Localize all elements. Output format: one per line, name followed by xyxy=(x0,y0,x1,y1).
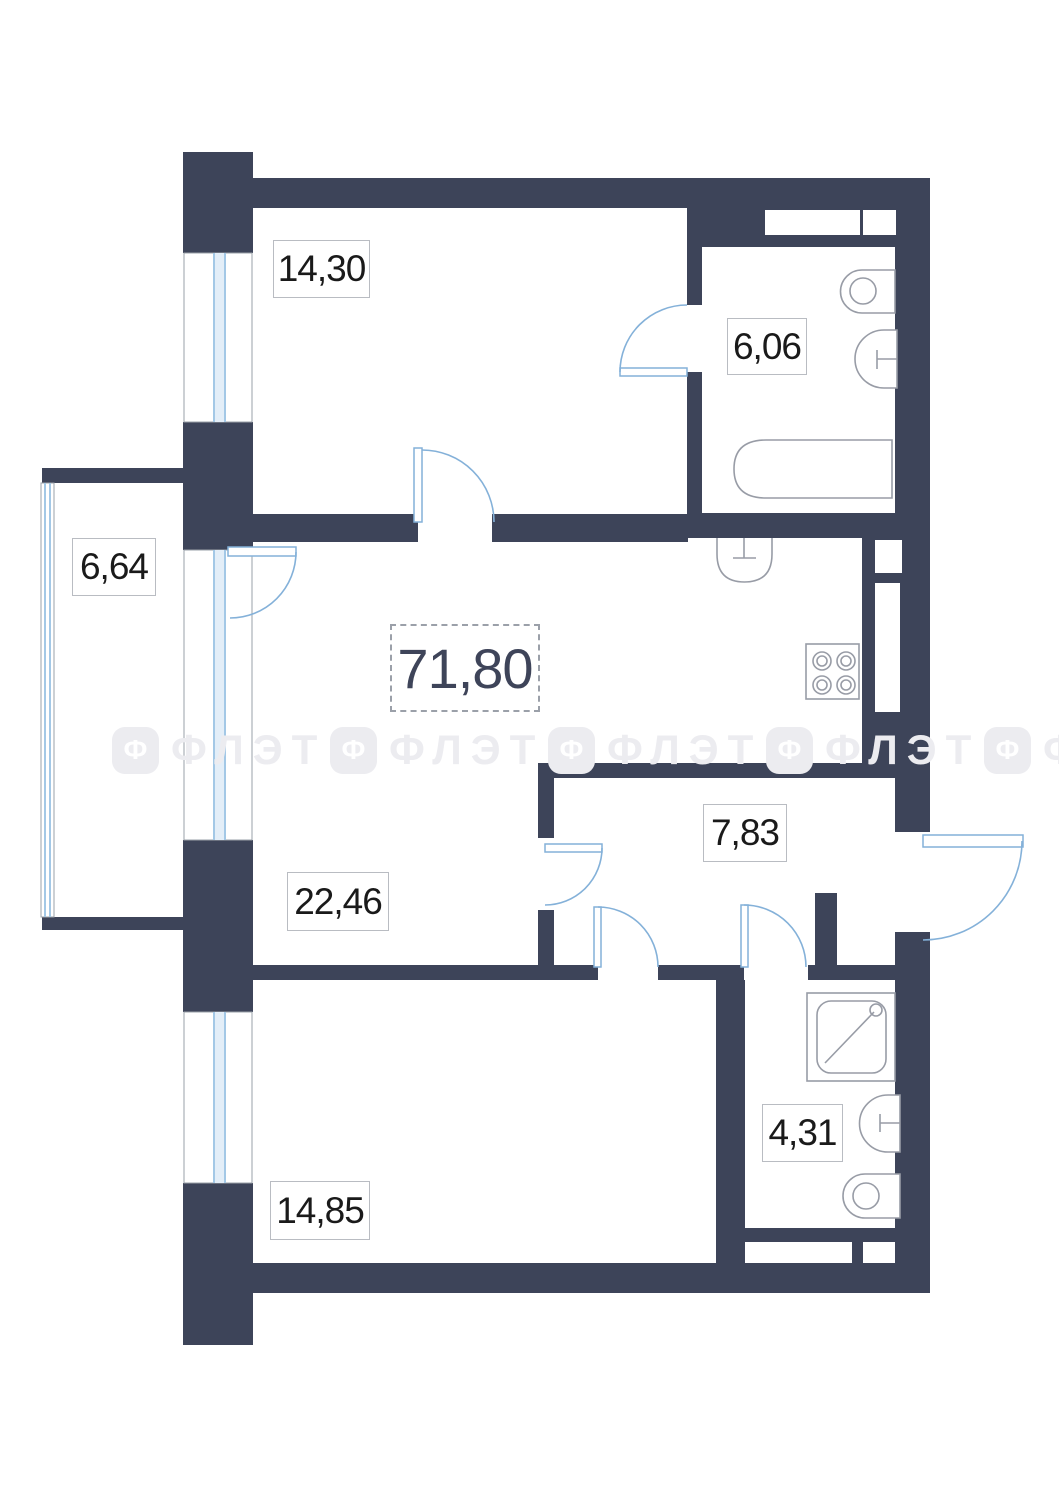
area-label-total: 71,80 xyxy=(390,624,540,712)
sink2-icon xyxy=(843,1174,900,1218)
floor-plan-drawing xyxy=(0,0,1059,1500)
area-label-room1: 14,30 xyxy=(273,240,370,298)
area-label-living: 22,46 xyxy=(287,872,389,931)
area-label-balcony: 6,64 xyxy=(72,538,156,596)
sink-round-icon xyxy=(840,270,895,313)
area-label-room2: 14,85 xyxy=(270,1181,370,1240)
toilet2-icon xyxy=(860,1095,901,1152)
floor-plan: 14,30 6,06 6,64 71,80 22,46 7,83 14,85 4… xyxy=(0,0,1059,1500)
area-label-bathroom2: 4,31 xyxy=(762,1104,843,1162)
area-label-hallway: 7,83 xyxy=(703,804,787,862)
toilet-icon xyxy=(855,330,897,388)
washbasin-icon xyxy=(717,538,772,582)
shower-icon xyxy=(807,993,895,1081)
bathtub-icon xyxy=(734,440,892,498)
stove-icon xyxy=(806,644,859,699)
windows xyxy=(41,253,252,1183)
area-label-bathroom1: 6,06 xyxy=(727,318,807,375)
